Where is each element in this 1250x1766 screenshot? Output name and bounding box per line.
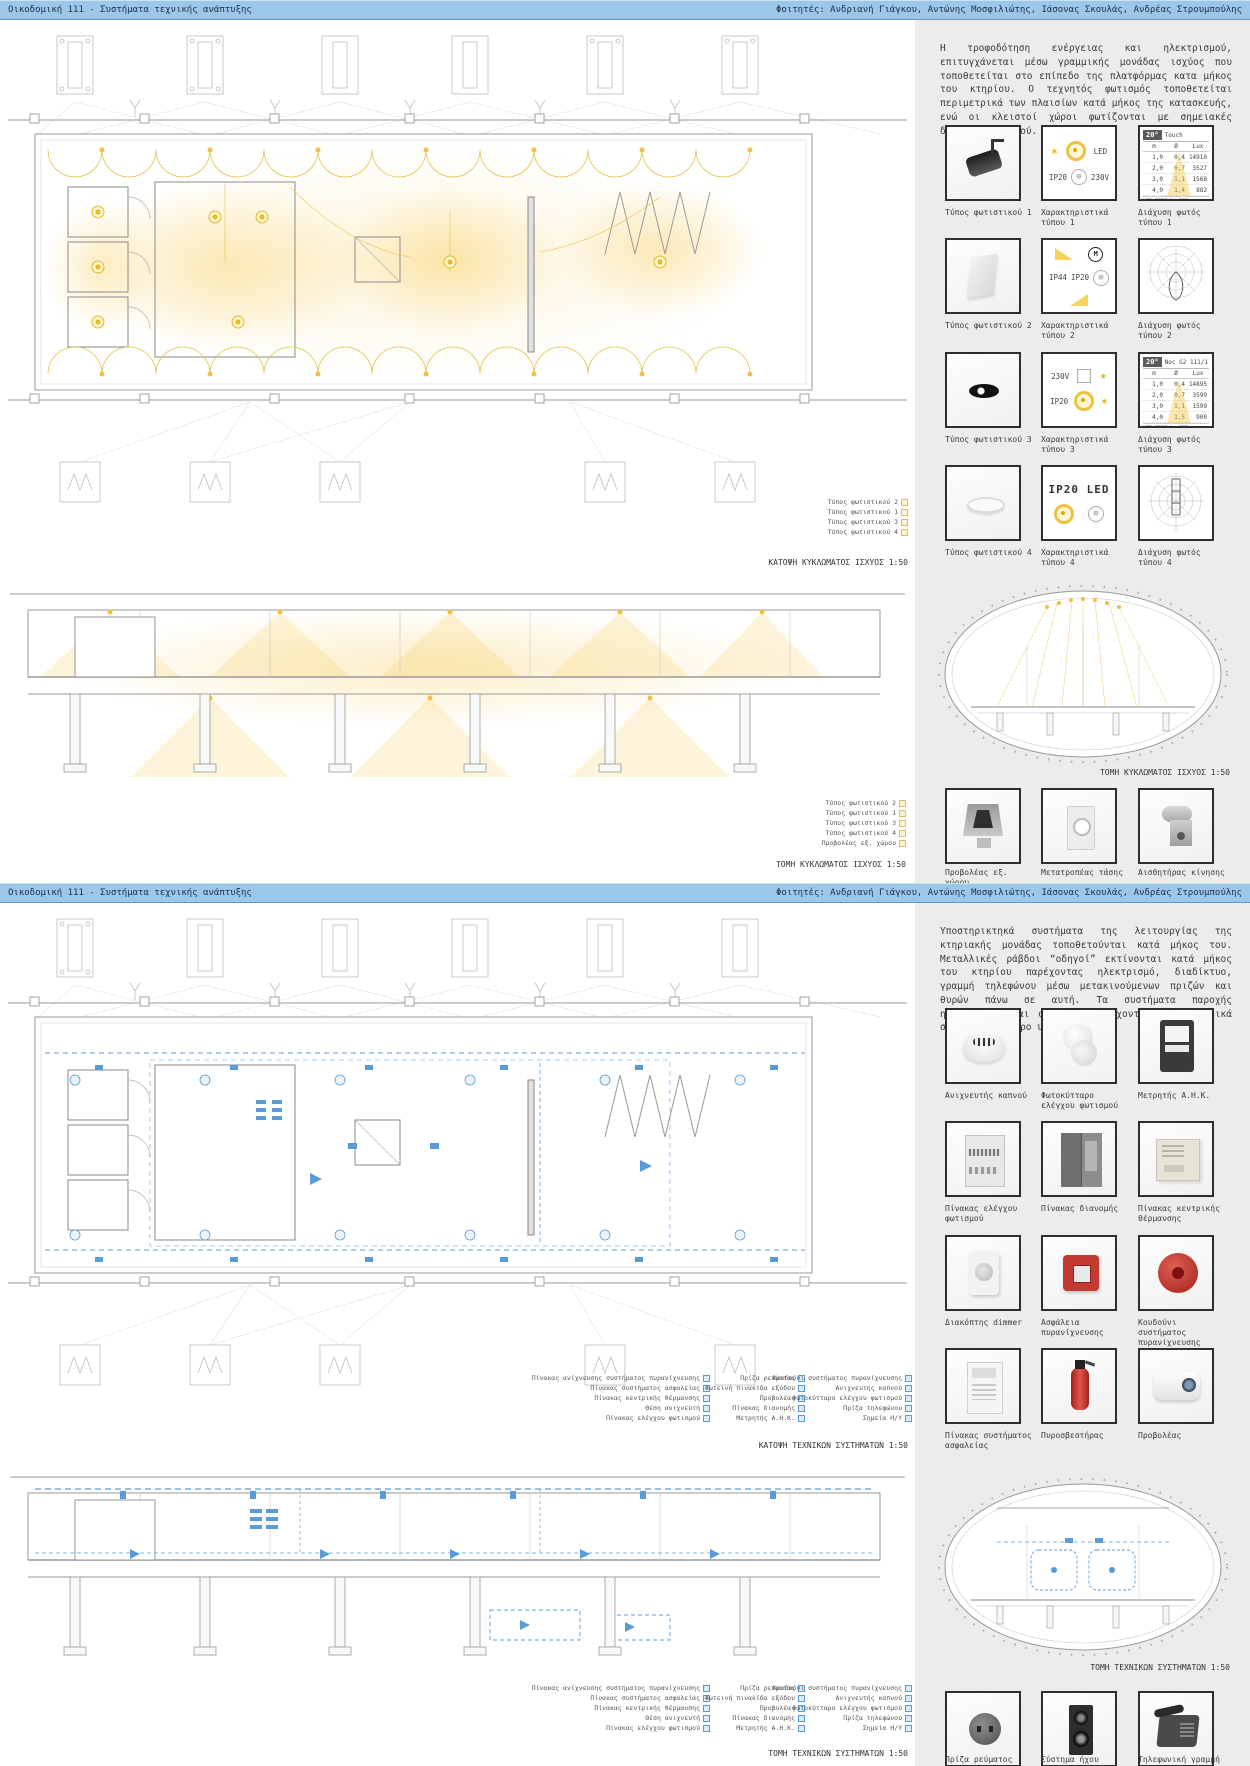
table-col: Lux [1187, 142, 1209, 152]
fixture-model: Touch [1165, 132, 1183, 139]
led-icon [1074, 391, 1094, 411]
characteristics-type4: IP20 LED ⊕ [1041, 465, 1117, 541]
ground-icon: ⊕ [1093, 270, 1109, 286]
photo-luminaire-type3 [945, 352, 1021, 428]
cell-label: Πυροσβεστήρας [1041, 1431, 1129, 1441]
moth-icon: ✶ [1100, 369, 1107, 383]
legend-label: Τύπος φωτιστικού 4 [826, 829, 896, 837]
section-legend: Τύπος φωτιστικού 2Τύπος φωτιστικού 1Τύπο… [822, 798, 906, 848]
ip-label: IP20 [1049, 173, 1067, 182]
legend-swatch [905, 1695, 912, 1702]
legend-swatch [899, 800, 906, 807]
cell-label: Τηλεφωνική γραμμή [1138, 1755, 1226, 1765]
cell-label: Χαρακτηριστικά τύπου 1 [1041, 208, 1129, 228]
plan-legend-col3: Κουδούνι συστήματος πυρανίχνευσηςΑνιχνευ… [773, 1373, 912, 1423]
photo-luminaire-type2 [945, 238, 1021, 314]
legend-swatch [905, 1405, 912, 1412]
legend-swatch [901, 499, 908, 506]
section-legend-col1: Πίνακας ανίχνευσης συστήματος πυρανίχνευ… [532, 1683, 710, 1733]
legend-label: Τύπος φωτιστικού 1 [826, 809, 896, 817]
ip-label: IP44 [1049, 273, 1067, 282]
legend-label: Φωτοκύτταρο ελέγχου φωτισμού [792, 1394, 902, 1402]
cell-label: Πρίζα ρεύματος [945, 1755, 1033, 1765]
diffusion-table-type1: 20°Touch mØLux 1,00,4149102,00,735273,01… [1138, 125, 1214, 201]
photo-luminaire-type1 [945, 125, 1021, 201]
section-caption: ΤΟΜΗ ΤΕΧΝΙΚΩΝ ΣΥΣΤΗΜΑΤΩΝ 1:50 [768, 1749, 908, 1758]
cell-label: Πίνακας ελέγχου φωτισμού [945, 1204, 1033, 1224]
ip-label: IP20 [1050, 397, 1068, 406]
legend-label: Θέση ανιχνευτή [645, 1404, 700, 1412]
photo-heating-panel [1138, 1121, 1214, 1197]
board2-sidebar: Υποστηρικτηκά συστήματα της λειτουργίας … [915, 903, 1250, 1766]
legend-label: Κουδούνι συστήματος πυρανίχνευσης [773, 1684, 902, 1692]
led-label: LED [1094, 147, 1108, 156]
legend-label: Κουδούνι συστήματος πυρανίχνευσης [773, 1374, 902, 1382]
legend-label: Ανιχνευτής καπνού [835, 1384, 902, 1392]
light-cone [1167, 379, 1191, 423]
legend-label: Πίνακας συστήματος ασφαλείας [590, 1694, 700, 1702]
legend-label: Τύπος φωτιστικού 4 [828, 528, 898, 536]
table-footer: LED 3000 lm 930 [1143, 196, 1209, 201]
legend-label: Πίνακας κεντρικής θέρμανσης [594, 1394, 700, 1402]
plan-legend: Τύπος φωτιστικού 2Τύπος φωτιστικού 1Τύπο… [828, 497, 908, 537]
ground-icon: ⊕ [1071, 169, 1087, 185]
plan-caption: ΚΑΤΟΨΗ ΚΥΚΛΩΜΑΤΟΣ ΙΣΧΥΟΣ 1:50 [768, 558, 908, 567]
cell-label: Αισθητήρας κίνησης [1138, 868, 1226, 878]
legend-label: Προβολέας εξ. χώρου [822, 839, 896, 847]
legend-swatch [899, 820, 906, 827]
cell-label: Κουδούνι συστήματος πυρανίχνευσης [1138, 1318, 1226, 1348]
photo-dimmer-switch [945, 1235, 1021, 1311]
cell-label: Μετρητής Α.Η.Κ. [1138, 1091, 1226, 1101]
cell-label: Ασφάλεια πυρανίχνευσης [1041, 1318, 1129, 1338]
cell-label: Προβολέας εξ. χώρου [945, 868, 1033, 883]
plan-caption: ΚΑΤΟΨΗ ΤΕΧΝΙΚΩΝ ΣΥΣΤΗΜΑΤΩΝ 1:50 [759, 1441, 908, 1450]
legend-label: Πίνακας ελέγχου φωτισμού [606, 1724, 700, 1732]
legend-label: Πίνακας ανίχνευσης συστήματος πυρανίχνευ… [532, 1684, 700, 1692]
cell-label: Διάχυση φωτός τύπου 1 [1138, 208, 1226, 228]
board1-sidebar: Η τροφοδότηση ενέργειας και ηλεκτρισμού,… [915, 20, 1250, 883]
table-footer: LED 3000 lm 930 (medium) [1143, 423, 1209, 428]
legend-label: Πίνακας κεντρικής θέρμανσης [594, 1704, 700, 1712]
legend-swatch [901, 519, 908, 526]
voltage-label: 230V [1091, 173, 1109, 182]
photo-projector [1138, 1348, 1214, 1424]
beam-wedge-icon [1055, 248, 1073, 260]
ellipse-section-systems [937, 1478, 1229, 1656]
cell-label: Διάχυση φωτός τύπου 2 [1138, 321, 1226, 341]
table-col: m [1143, 369, 1165, 379]
section-caption: ΤΟΜΗ ΚΥΚΛΩΜΑΤΟΣ ΙΣΧΥΟΣ 1:50 [776, 860, 906, 869]
moth-icon: ✶ [1051, 144, 1058, 158]
ip-label: IP20 [1071, 273, 1089, 282]
board1-header: Οικοδομική 111 - Συστήματα τεχνικής ανάπ… [0, 0, 1250, 20]
cell-label: Πίνακας κεντρικής θέρμανσης [1138, 1204, 1226, 1224]
beam-angle: 20° [1143, 357, 1162, 367]
photo-fire-call-point [1041, 1235, 1117, 1311]
legend-swatch [905, 1715, 912, 1722]
board-technical-systems: Οικοδομική 111 - Συστήματα τεχνικής ανάπ… [0, 883, 1250, 1766]
legend-swatch [899, 840, 906, 847]
beam-wedge-icon [1070, 294, 1088, 306]
legend-label: Πίνακας ελέγχου φωτισμού [606, 1414, 700, 1422]
characteristics-type1: ✶LED IP20⊕230V [1041, 125, 1117, 201]
cell-label: Διάχυση φωτός τύπου 4 [1138, 548, 1226, 568]
cell-label: Διάχυση φωτός τύπου 3 [1138, 435, 1226, 455]
legend-label: Τύπος φωτιστικού 3 [826, 819, 896, 827]
legend-swatch [905, 1685, 912, 1692]
legend-label: Τύπος φωτιστικού 2 [828, 498, 898, 506]
photo-luminaire-type4 [945, 465, 1021, 541]
eye-m-icon: M [1088, 247, 1103, 262]
plan-drawing-lighting [0, 22, 915, 567]
light-cone [1167, 152, 1191, 196]
splash-icon: ✶ [1101, 394, 1108, 408]
legend-swatch [899, 810, 906, 817]
cell-label: Χαρακτηριστικά τύπου 3 [1041, 435, 1129, 455]
table-col: m [1143, 142, 1165, 152]
legend-label: Τύπος φωτιστικού 1 [828, 508, 898, 516]
legend-swatch [901, 529, 908, 536]
ip-led-label: IP20 LED [1047, 483, 1111, 496]
photo-security-panel [945, 1348, 1021, 1424]
legend-swatch [905, 1385, 912, 1392]
led-icon [1054, 504, 1074, 524]
voltage-label: 230V [1051, 372, 1069, 381]
photo-fire-bell [1138, 1235, 1214, 1311]
cell-label: Προβολέας [1138, 1431, 1226, 1441]
legend-swatch [905, 1415, 912, 1422]
photo-lighting-panel [945, 1121, 1021, 1197]
table-col: Ø [1165, 369, 1187, 379]
photo-voltage-converter [1041, 788, 1117, 864]
legend-label: Τύπος φωτιστικού 3 [828, 518, 898, 526]
students-credit: Φοιτητές: Ανδριανή Γιάγκου, Αντώνης Μοσφ… [776, 5, 1242, 15]
board-title: Οικοδομική 111 - Συστήματα τεχνικής ανάπ… [8, 888, 252, 898]
photo-motion-sensor [1138, 788, 1214, 864]
legend-label: Φωτοκύτταρο ελέγχου φωτισμού [792, 1704, 902, 1712]
table-col: Ø [1165, 142, 1187, 152]
plan-legend-col1: Πίνακας ανίχνευσης συστήματος πυρανίχνευ… [532, 1373, 710, 1423]
photo-floodlight [945, 788, 1021, 864]
cell-label: Πίνακας συστήματος ασφαλείας [945, 1431, 1033, 1451]
table-col: Lux [1187, 369, 1209, 379]
plan-drawing-systems [0, 905, 915, 1450]
legend-swatch [905, 1725, 912, 1732]
ground-icon: ⊕ [1088, 506, 1104, 522]
ellipse-caption: ΤΟΜΗ ΤΕΧΝΙΚΩΝ ΣΥΣΤΗΜΑΤΩΝ 1:50 [1090, 1663, 1230, 1672]
legend-label: Πίνακας συστήματος ασφαλείας [590, 1384, 700, 1392]
cell-label: Τύπος φωτιστικού 3 [945, 435, 1033, 445]
photo-photocell [1041, 1008, 1117, 1084]
fixture-model: Noc G2 111/1 [1165, 359, 1208, 366]
poster-page: Οικοδομική 111 - Συστήματα τεχνικής ανάπ… [0, 0, 1250, 1766]
legend-label: Σημεία Η/Υ [863, 1414, 902, 1422]
section-drawing-systems [0, 1465, 915, 1675]
photo-distribution-board [1041, 1121, 1117, 1197]
section-drawing-lighting [0, 582, 915, 792]
legend-swatch [905, 1395, 912, 1402]
legend-label: Θέση ανιχνευτή [645, 1714, 700, 1722]
legend-swatch [899, 830, 906, 837]
polar-diagram-type2 [1138, 238, 1214, 314]
ellipse-section-lighting [937, 585, 1229, 763]
photo-fire-extinguisher [1041, 1348, 1117, 1424]
cell-label: Τύπος φωτιστικού 2 [945, 321, 1033, 331]
board2-header: Οικοδομική 111 - Συστήματα τεχνικής ανάπ… [0, 883, 1250, 903]
characteristics-type2: M IP44IP20⊕ [1041, 238, 1117, 314]
cell-label: Πίνακας διανομής [1041, 1204, 1129, 1214]
cell-label: Ανιχνευτής καπνού [945, 1091, 1033, 1101]
square-icon [1077, 369, 1091, 383]
legend-label: Πίνακας ανίχνευσης συστήματος πυρανίχνευ… [532, 1374, 700, 1382]
cell-label: Χαρακτηριστικά τύπου 2 [1041, 321, 1129, 341]
cell-label: Φωτοκύτταρο ελέγχου φωτισμού [1041, 1091, 1129, 1111]
ellipse-caption: ΤΟΜΗ ΚΥΚΛΩΜΑΤΟΣ ΙΣΧΥΟΣ 1:50 [1100, 768, 1230, 777]
legend-label: Πρίζα τηλεφώνου [843, 1714, 902, 1722]
cell-label: Χαρακτηριστικά τύπου 4 [1041, 548, 1129, 568]
cell-label: Μετατροπέας τάσης [1041, 868, 1129, 878]
characteristics-type3: 230V✶ IP20✶ [1041, 352, 1117, 428]
board-lighting: Οικοδομική 111 - Συστήματα τεχνικής ανάπ… [0, 0, 1250, 883]
legend-label: Πρίζα τηλεφώνου [843, 1404, 902, 1412]
cell-label: Τύπος φωτιστικού 4 [945, 548, 1033, 558]
beam-angle: 20° [1143, 130, 1162, 140]
legend-swatch [905, 1375, 912, 1382]
legend-label: Σημεία Η/Υ [863, 1724, 902, 1732]
legend-swatch [905, 1705, 912, 1712]
legend-swatch [901, 509, 908, 516]
students-credit: Φοιτητές: Ανδριανή Γιάγκου, Αντώνης Μοσφ… [776, 888, 1242, 898]
photo-utility-meter [1138, 1008, 1214, 1084]
polar-diagram-type4 [1138, 465, 1214, 541]
led-icon [1066, 141, 1086, 161]
legend-label: Τύπος φωτιστικού 2 [826, 799, 896, 807]
diffusion-table-type3: 20°Noc G2 111/1 mØLux 1,00,4148952,00,73… [1138, 352, 1214, 428]
section-legend-col3: Κουδούνι συστήματος πυρανίχνευσηςΑνιχνευ… [773, 1683, 912, 1733]
cell-label: Τύπος φωτιστικού 1 [945, 208, 1033, 218]
cell-label: Σύστημα ήχου [1041, 1755, 1129, 1765]
legend-label: Ανιχνευτής καπνού [835, 1694, 902, 1702]
cell-label: Διακόπτης dimmer [945, 1318, 1033, 1328]
photo-smoke-detector [945, 1008, 1021, 1084]
intro-paragraph: Η τροφοδότηση ενέργειας και ηλεκτρισμού,… [940, 42, 1232, 138]
board-title: Οικοδομική 111 - Συστήματα τεχνικής ανάπ… [8, 5, 252, 15]
